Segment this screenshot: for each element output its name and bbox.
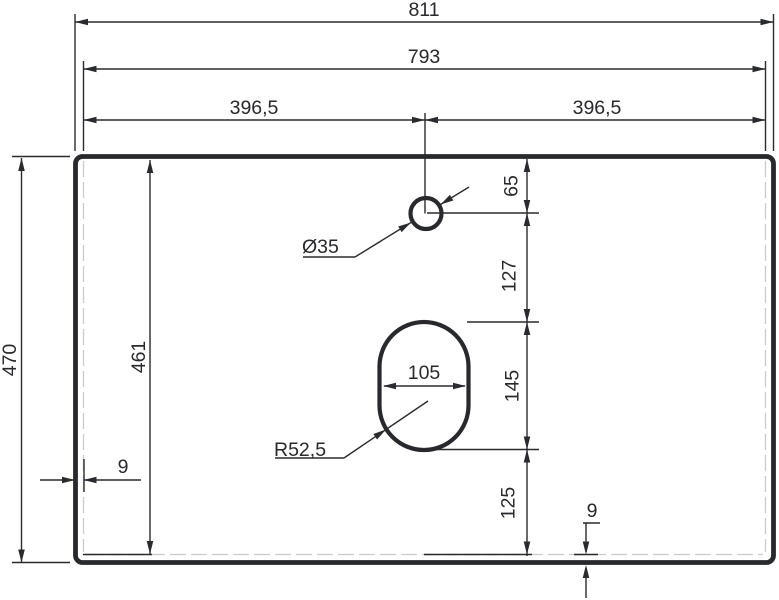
dim-label-overall-width: 811	[408, 0, 439, 21]
dim-label-hole-from-top: 65	[501, 175, 523, 197]
dim-label-inner-depth: 461	[128, 341, 150, 374]
arrowhead	[75, 19, 88, 26]
arrowhead	[147, 160, 154, 173]
dim-label-cutout-radius: R52,5	[274, 439, 326, 461]
arrowhead	[84, 66, 97, 73]
arrowhead	[62, 477, 75, 484]
arrowhead	[18, 550, 25, 563]
dim-label-cutout-to-bottom: 125	[498, 487, 520, 520]
arrowhead	[453, 383, 466, 390]
dim-label-rim-bottom: 9	[587, 500, 598, 522]
arrowhead	[583, 542, 590, 555]
dim-label-half-width-left: 396,5	[230, 97, 279, 119]
dim-label-overall-depth: 470	[0, 344, 21, 377]
arrowhead	[524, 159, 531, 172]
dim-label-inner-width: 793	[408, 46, 441, 68]
arrowhead	[524, 309, 531, 322]
dim-label-rim-left: 9	[118, 456, 129, 478]
dim-label-half-width-right: 396,5	[573, 97, 622, 119]
dim-label-cutout-width: 105	[408, 362, 441, 384]
drawing-svg: 811 793 396,5 396,5 470 461 9 65 127 145	[0, 0, 779, 600]
countertop-outline	[76, 157, 774, 563]
arrowhead	[524, 322, 531, 335]
arrowhead	[753, 117, 766, 124]
arrowhead	[84, 477, 97, 484]
arrowhead	[18, 158, 25, 171]
arrowhead	[524, 200, 531, 213]
dim-label-cutout-height: 145	[502, 370, 524, 403]
dim-label-hole-to-cutout: 127	[499, 260, 521, 293]
technical-drawing-canvas: 811 793 396,5 396,5 470 461 9 65 127 145	[0, 0, 779, 600]
arrowhead	[583, 565, 590, 578]
arrowhead	[412, 117, 425, 124]
arrowhead	[524, 542, 531, 555]
arrowhead	[84, 117, 97, 124]
dim-label-hole-diameter: Ø35	[302, 236, 339, 258]
arrowhead	[383, 383, 396, 390]
arrowhead	[753, 66, 766, 73]
arrowhead	[524, 450, 531, 463]
arrowhead	[147, 541, 154, 554]
arrowhead	[761, 19, 774, 26]
arrowhead	[524, 437, 531, 450]
arrowhead	[524, 213, 531, 226]
arrowhead	[425, 117, 438, 124]
